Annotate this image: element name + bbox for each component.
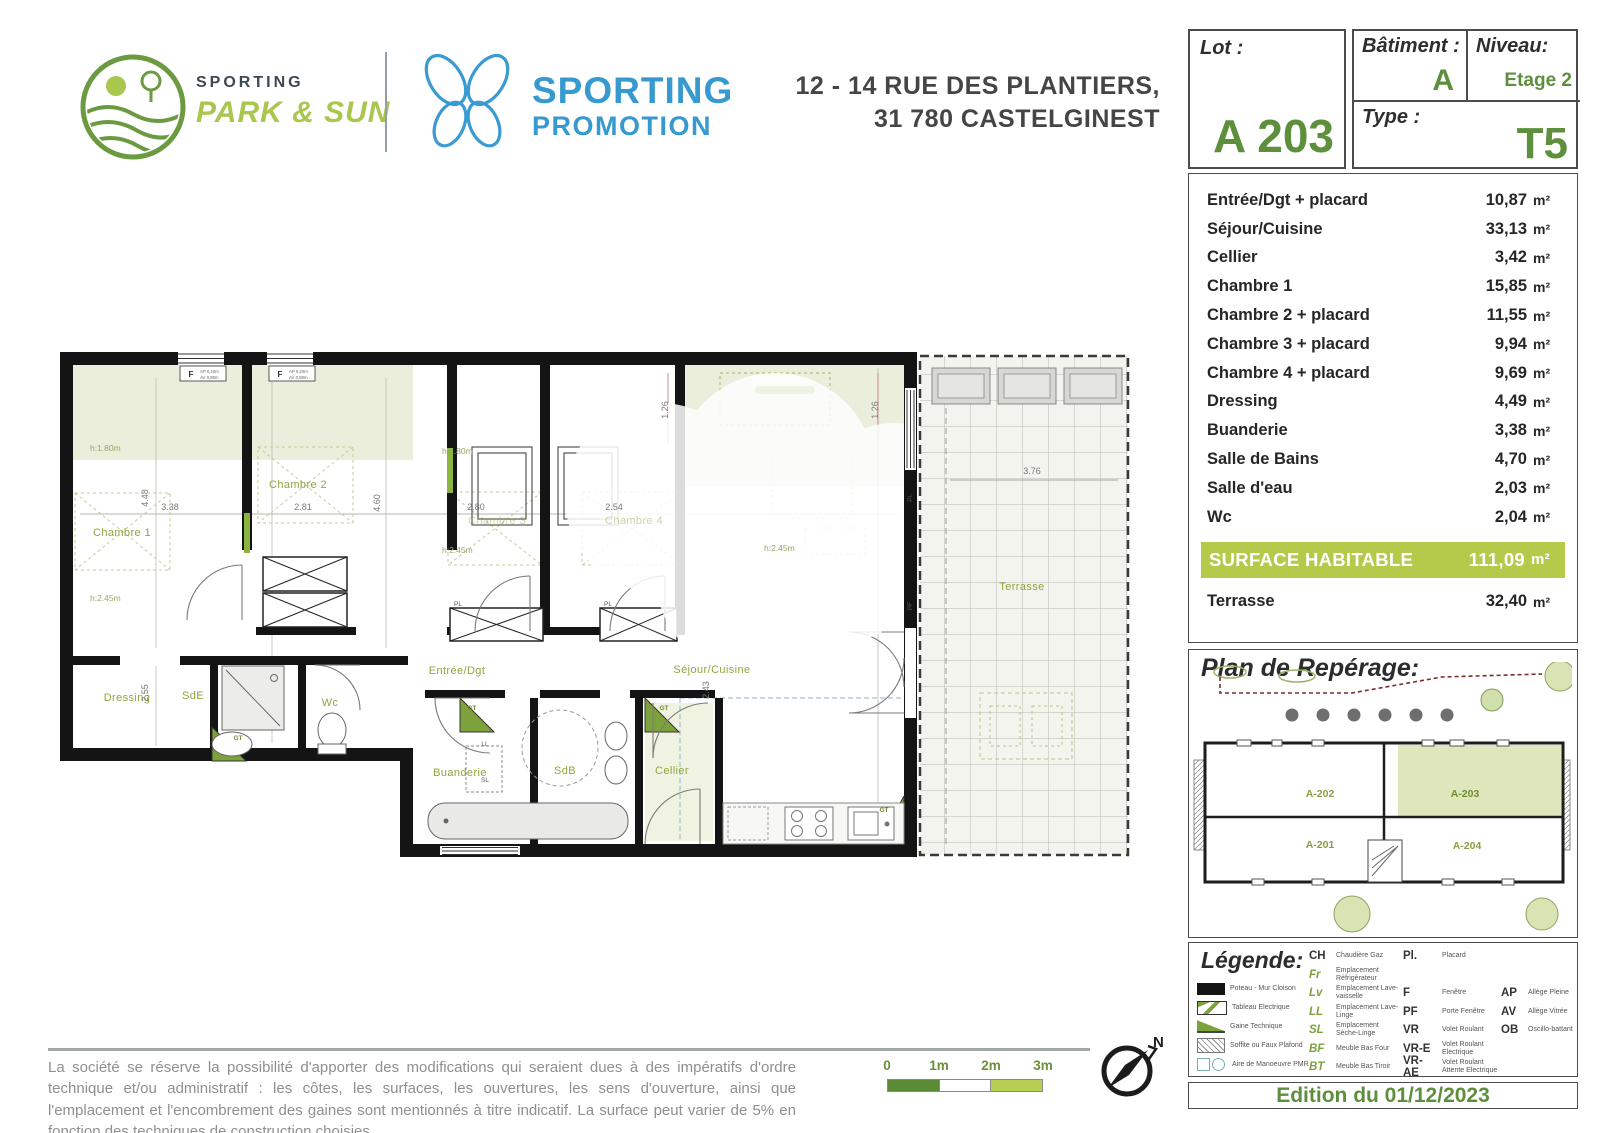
legend-item: VRVolet Roulant — [1403, 1021, 1484, 1039]
batiment-cell: Bâtiment : A — [1354, 31, 1468, 102]
surface-habitable-band: SURFACE HABITABLE 111,09 m² — [1201, 542, 1565, 578]
legend-item: SLEmplacement Sèche-Linge — [1309, 1021, 1401, 1039]
niveau-cell: Niveau: Etage 2 — [1468, 31, 1580, 102]
area-row: Entrée/Dgt + placard10,87m² — [1189, 186, 1577, 215]
terrace-unit: m² — [1527, 594, 1563, 610]
planter — [932, 368, 1122, 404]
scale-bar — [887, 1079, 1043, 1092]
wall-icon — [1197, 983, 1225, 995]
project-address: 12 - 14 RUE DES PLANTIERS, 31 780 CASTEL… — [760, 70, 1160, 135]
annotation-label: Pl. — [907, 494, 914, 502]
promotion-logo — [408, 48, 526, 165]
annotation-label: AV 0,80m — [200, 375, 219, 380]
area-row: Chambre 4 + placard9,69m² — [1189, 359, 1577, 388]
areas-rows: Entrée/Dgt + placard10,87m²Séjour/Cuisin… — [1189, 186, 1577, 532]
annotation-label: GT — [879, 807, 888, 814]
legend-item: OBOscillo-battant — [1501, 1021, 1573, 1039]
soffite-icon — [1197, 1038, 1225, 1053]
room-label: Buanderie — [433, 767, 487, 779]
scale-tick-label: 2m — [978, 1058, 1004, 1073]
legend-alleges-column: APAllège PleineAVAllège VitréeOBOscillo-… — [1501, 943, 1577, 1078]
legend-item: VR-AEVolet Roulant Attente Electrique — [1403, 1058, 1499, 1076]
unit-label-A-201: A-201 — [1306, 839, 1335, 851]
room-label: Chambre 3 — [468, 515, 526, 527]
scale-tick-label: 1m — [926, 1058, 952, 1073]
legend-openings-column: Pl.PlacardFFenêtrePFPorte FenêtreVRVolet… — [1403, 943, 1499, 1078]
legend-item: Aire de Manoeuvre PMR — [1197, 1055, 1309, 1074]
parksun-logo — [78, 52, 188, 162]
height-label: h:1.80m — [442, 446, 473, 456]
batiment-type-box: Bâtiment : A Niveau: Etage 2 Type : T5 — [1352, 29, 1578, 169]
tree-icon — [1481, 689, 1503, 711]
room-label: Wc — [322, 697, 339, 709]
legend-item: BTMeuble Bas Tiroir — [1309, 1058, 1390, 1076]
promotion-line1: SPORTING — [532, 72, 733, 109]
edition-box: Edition du 01/12/2023 — [1188, 1082, 1578, 1109]
annotation-label: AP 0,20m — [200, 369, 219, 374]
area-row: Séjour/Cuisine33,13m² — [1189, 215, 1577, 244]
dimension-label: 2.55 — [140, 684, 150, 702]
reperage-box: Plan de Repérage: — [1188, 649, 1578, 938]
annotation-label: AV 0,80m — [289, 375, 308, 380]
butterfly-icon — [408, 48, 526, 160]
room-label: Chambre 2 — [269, 479, 327, 491]
tree-icon — [1545, 662, 1572, 691]
legend-item: APAllège Pleine — [1501, 984, 1569, 1002]
unit-label-A-203: A-203 — [1451, 788, 1480, 800]
legend-item: LvEmplacement Lave-vaisselle — [1309, 984, 1401, 1002]
terrace-label: Terrasse — [1207, 592, 1473, 611]
parksun-logo-icon — [78, 52, 188, 162]
legend-icons-column: Poteau - Mur CloisonTableau ElectriqueGa… — [1197, 979, 1309, 1074]
legend-box: Légende: Poteau - Mur CloisonTableau Ele… — [1188, 942, 1578, 1077]
legend-item: AVAllège Vitrée — [1501, 1003, 1568, 1021]
street-dots — [1286, 709, 1454, 722]
terrace-value: 32,40 — [1473, 592, 1527, 611]
surface-label: SURFACE HABITABLE — [1209, 549, 1461, 571]
room-label: Entrée/Dgt — [429, 665, 486, 677]
scale-seg-light — [991, 1080, 1042, 1091]
hedge-icon — [1279, 670, 1315, 682]
legend-item: Tableau Electrique — [1197, 998, 1309, 1017]
parksun-wordmark: SPORTING PARK & SUN — [196, 74, 390, 130]
batiment-value: A — [1432, 64, 1454, 98]
legend-item: LLEmplacement Lave-Linge — [1309, 1003, 1401, 1021]
promotion-line2: PROMOTION — [532, 113, 733, 140]
surface-value: 111,09 — [1461, 549, 1525, 571]
area-row: Salle de Bains4,70m² — [1189, 445, 1577, 474]
room-label: Chambre 4 — [605, 515, 663, 527]
unit-label-A-204: A-204 — [1453, 840, 1482, 852]
dimension-label: 4.48 — [140, 489, 150, 507]
reperage-miniplan: A-202A-203A-201A-204 — [1192, 662, 1572, 936]
legend-item: Soffite ou Faux Plafond — [1197, 1036, 1309, 1055]
lot-box: Lot : A 203 — [1188, 29, 1346, 169]
dimension-label: 2.81 — [294, 502, 312, 512]
dimension-label: 2.80 — [467, 502, 485, 512]
room-label: Cellier — [655, 765, 689, 777]
scale-tick-label: 3m — [1030, 1058, 1056, 1073]
pmr-icon — [1197, 1058, 1227, 1071]
annotation-label: F — [278, 370, 283, 379]
scale-tick-label: 0 — [874, 1058, 900, 1073]
area-row: Wc2,04m² — [1189, 503, 1577, 532]
floorplan: Chambre 1Chambre 2Chambre 3Chambre 4Entr… — [60, 348, 1135, 862]
room-label: Séjour/Cuisine — [673, 664, 750, 676]
niveau-value: Etage 2 — [1504, 70, 1572, 92]
annotation-label: SL — [481, 777, 489, 784]
area-row: Buanderie3,38m² — [1189, 416, 1577, 445]
legend-item: Gaine Technique — [1197, 1017, 1309, 1036]
room-label: SdE — [182, 690, 204, 702]
legend-item: PFPorte Fenêtre — [1403, 1003, 1485, 1021]
annotation-label: LL — [481, 741, 489, 748]
legend-item: FFenêtre — [1403, 984, 1466, 1002]
disclaimer-text: La société se réserve la possibilité d'a… — [48, 1057, 796, 1133]
surface-unit: m² — [1525, 551, 1561, 568]
height-label: h:1.80m — [90, 443, 121, 453]
terrace — [920, 356, 1128, 855]
legend-item: Pl.Placard — [1403, 947, 1466, 965]
room-label: SdB — [554, 765, 576, 777]
hedge-icon — [1214, 666, 1246, 678]
niveau-label: Niveau: — [1468, 31, 1580, 58]
legend-item: Poteau - Mur Cloison — [1197, 979, 1309, 998]
annotation-label: PL — [604, 601, 612, 608]
room-label: Chambre 1 — [93, 527, 151, 539]
dimension-label: 1.26 — [660, 401, 670, 419]
lot-label: Lot : — [1190, 31, 1344, 60]
dimension-label: 3.76 — [1023, 466, 1041, 476]
batiment-label: Bâtiment : — [1354, 31, 1466, 58]
lot-value: A 203 — [1213, 109, 1334, 163]
area-row: Chambre 3 + placard9,94m² — [1189, 330, 1577, 359]
north-compass: N — [1095, 1033, 1167, 1101]
address-line1: 12 - 14 RUE DES PLANTIERS, — [760, 70, 1160, 103]
tableau-icon — [1197, 1001, 1227, 1015]
scale-seg-dark — [888, 1080, 939, 1091]
type-cell: Type : T5 — [1354, 102, 1580, 169]
area-row: Chambre 115,85m² — [1189, 272, 1577, 301]
height-label: h:2.45m — [764, 543, 795, 553]
floorplan-sheet: SPORTING PARK & SUN SPORTING PROMOTION 1… — [0, 0, 1600, 1133]
gaine-icon — [1197, 1020, 1225, 1033]
dimension-label: 2.54 — [605, 502, 623, 512]
annotation-label: F — [189, 370, 194, 379]
legend-equip-column: CHChaudière GazFrEmplacement Réfrigérate… — [1309, 943, 1401, 1078]
annotation-label: GT — [233, 735, 242, 742]
scale-seg-white — [939, 1080, 990, 1091]
dimension-label: 3.38 — [161, 502, 179, 512]
area-row: Chambre 2 + placard11,55m² — [1189, 301, 1577, 330]
compass-needle-icon — [1108, 1050, 1148, 1088]
areas-table: Entrée/Dgt + placard10,87m²Séjour/Cuisin… — [1188, 173, 1578, 643]
dimension-label: 1.26 — [870, 401, 880, 419]
header-divider — [385, 52, 387, 152]
legend-item: FrEmplacement Réfrigérateur — [1309, 966, 1401, 984]
height-label: h:2.45m — [442, 545, 473, 555]
annotation-label: GT — [659, 705, 668, 712]
dimension-label: 2.43 — [701, 681, 711, 699]
legend-item: CHChaudière Gaz — [1309, 947, 1383, 965]
annotation-label: GT — [467, 705, 476, 712]
parksun-line1: SPORTING — [196, 74, 390, 92]
unit-a203-highlight — [1398, 745, 1561, 817]
legend-item: BFMeuble Bas Four — [1309, 1040, 1389, 1058]
promotion-wordmark: SPORTING PROMOTION — [532, 72, 733, 140]
room-label: Terrasse — [999, 581, 1044, 593]
terrace-row: Terrasse 32,40 m² — [1189, 588, 1577, 617]
compass-n-label: N — [1153, 1034, 1164, 1051]
annotation-label: AP 0,20m — [289, 369, 308, 374]
dimension-label: 4.60 — [372, 494, 382, 512]
type-value: T5 — [1517, 119, 1568, 169]
footer-divider — [48, 1048, 1090, 1051]
area-row: Salle d'eau2,03m² — [1189, 474, 1577, 503]
area-row: Dressing4,49m² — [1189, 388, 1577, 417]
area-row: Cellier3,42m² — [1189, 244, 1577, 273]
annotation-label: PF — [907, 602, 914, 610]
address-line2: 31 780 CASTELGINEST — [760, 103, 1160, 136]
parksun-line2: PARK & SUN — [196, 96, 390, 130]
tree-icon — [1526, 898, 1558, 930]
unit-label-A-202: A-202 — [1306, 788, 1335, 800]
annotation-label: PL — [454, 601, 462, 608]
tree-icon — [1334, 896, 1370, 932]
height-label: h:2.45m — [90, 593, 121, 603]
